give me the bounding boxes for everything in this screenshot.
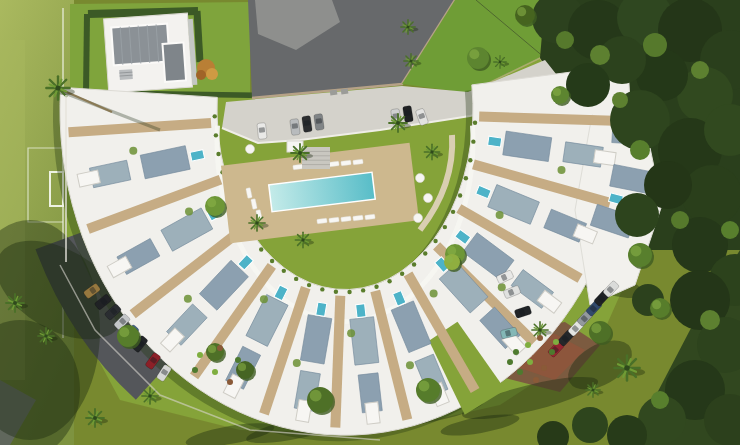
roof-garden (185, 207, 193, 215)
woodland-tree (612, 92, 628, 108)
woodland-tree (590, 45, 610, 65)
garden-plant (553, 339, 559, 345)
pergola (593, 150, 616, 166)
woodland-tree (651, 391, 669, 409)
roof-garden (293, 359, 301, 367)
garden-plant (541, 365, 547, 371)
sun-lounger (353, 159, 363, 165)
round-tree (117, 325, 139, 347)
garden-plant (517, 369, 523, 375)
planter (214, 133, 218, 137)
planter (400, 272, 404, 276)
garden-plant (235, 357, 241, 363)
planter (423, 251, 427, 255)
garden-plant (212, 369, 218, 375)
round-tree (467, 47, 489, 69)
woodland-tree (691, 61, 709, 79)
woodland-tree (721, 221, 739, 239)
planter (307, 283, 311, 287)
planter (471, 139, 475, 143)
planter (216, 152, 220, 156)
rooftop-jacuzzi (316, 302, 327, 316)
woodland-tree (671, 211, 689, 229)
woodland-tree (700, 310, 720, 330)
garden-plant (197, 352, 203, 358)
pergola (365, 402, 380, 424)
planter (443, 225, 447, 229)
garden-plant (549, 349, 555, 355)
round-tree (551, 86, 569, 104)
sun-lounger (341, 160, 351, 166)
roof-garden (430, 289, 438, 297)
planter (458, 193, 462, 197)
round-table (424, 194, 433, 203)
round-tree (307, 387, 333, 413)
planter (347, 290, 351, 294)
planter (259, 247, 263, 251)
round-tree (650, 298, 670, 318)
woodland-tree (566, 63, 610, 107)
roof-garden (406, 361, 414, 369)
planter (468, 158, 472, 162)
planter (473, 121, 477, 125)
woodland-tree (643, 33, 667, 57)
deck-walkway (335, 296, 340, 428)
planter (412, 262, 416, 266)
planter (270, 259, 274, 263)
round-table (414, 214, 423, 223)
round-tree (589, 321, 611, 343)
planter (361, 288, 365, 292)
round-tree (444, 254, 460, 270)
round-tree (628, 243, 652, 267)
roof-garden (129, 147, 137, 155)
garden-plant (537, 335, 543, 341)
garden-plant (507, 359, 513, 365)
rooftop-jacuzzi (488, 136, 502, 147)
roof-garden (498, 283, 506, 291)
garden-plant (513, 349, 519, 355)
roof-garden (260, 295, 268, 303)
speed-bump (341, 88, 349, 94)
roof-panel (350, 317, 379, 365)
roof-garden (347, 329, 355, 337)
garden-plant (217, 345, 223, 351)
sun-lounger (341, 216, 351, 222)
round-tree (236, 361, 254, 379)
garden-plant (527, 359, 533, 365)
sun-lounger (317, 218, 327, 224)
round-tree (515, 5, 535, 25)
woodland-tree (572, 407, 608, 443)
round-tree (416, 378, 440, 402)
rooftop-jacuzzi (356, 304, 366, 318)
garden-plant (525, 342, 531, 348)
sun-lounger (365, 214, 375, 220)
planter (294, 277, 298, 281)
planter (374, 285, 378, 289)
woodland-tree (556, 31, 574, 49)
woodland-tree (630, 140, 650, 160)
sun-lounger (329, 161, 339, 167)
planter (451, 210, 455, 214)
speed-bump (330, 89, 338, 95)
planter (282, 269, 286, 273)
roof-garden (558, 166, 566, 174)
garden-plant (533, 377, 539, 383)
sun-lounger (329, 217, 339, 223)
garden-plant (192, 367, 198, 373)
planter (213, 114, 217, 118)
round-table (416, 174, 425, 183)
woodland-tree (615, 193, 659, 237)
deck-walkway (479, 116, 622, 121)
roof-garden (496, 211, 504, 219)
planter (464, 176, 468, 180)
aerial-site-render (0, 0, 740, 445)
planter (387, 279, 391, 283)
round-table (246, 145, 255, 154)
roof-garden (184, 295, 192, 303)
planter (334, 290, 338, 294)
planter (433, 239, 437, 243)
round-tree (205, 196, 225, 216)
garden-plant (227, 379, 233, 385)
planter (320, 287, 324, 291)
car (257, 123, 267, 140)
woodland-tree (682, 165, 740, 225)
sun-lounger (353, 215, 363, 221)
scene-canvas (0, 0, 740, 445)
sun-lounger (293, 164, 303, 170)
villa-house (104, 13, 198, 93)
